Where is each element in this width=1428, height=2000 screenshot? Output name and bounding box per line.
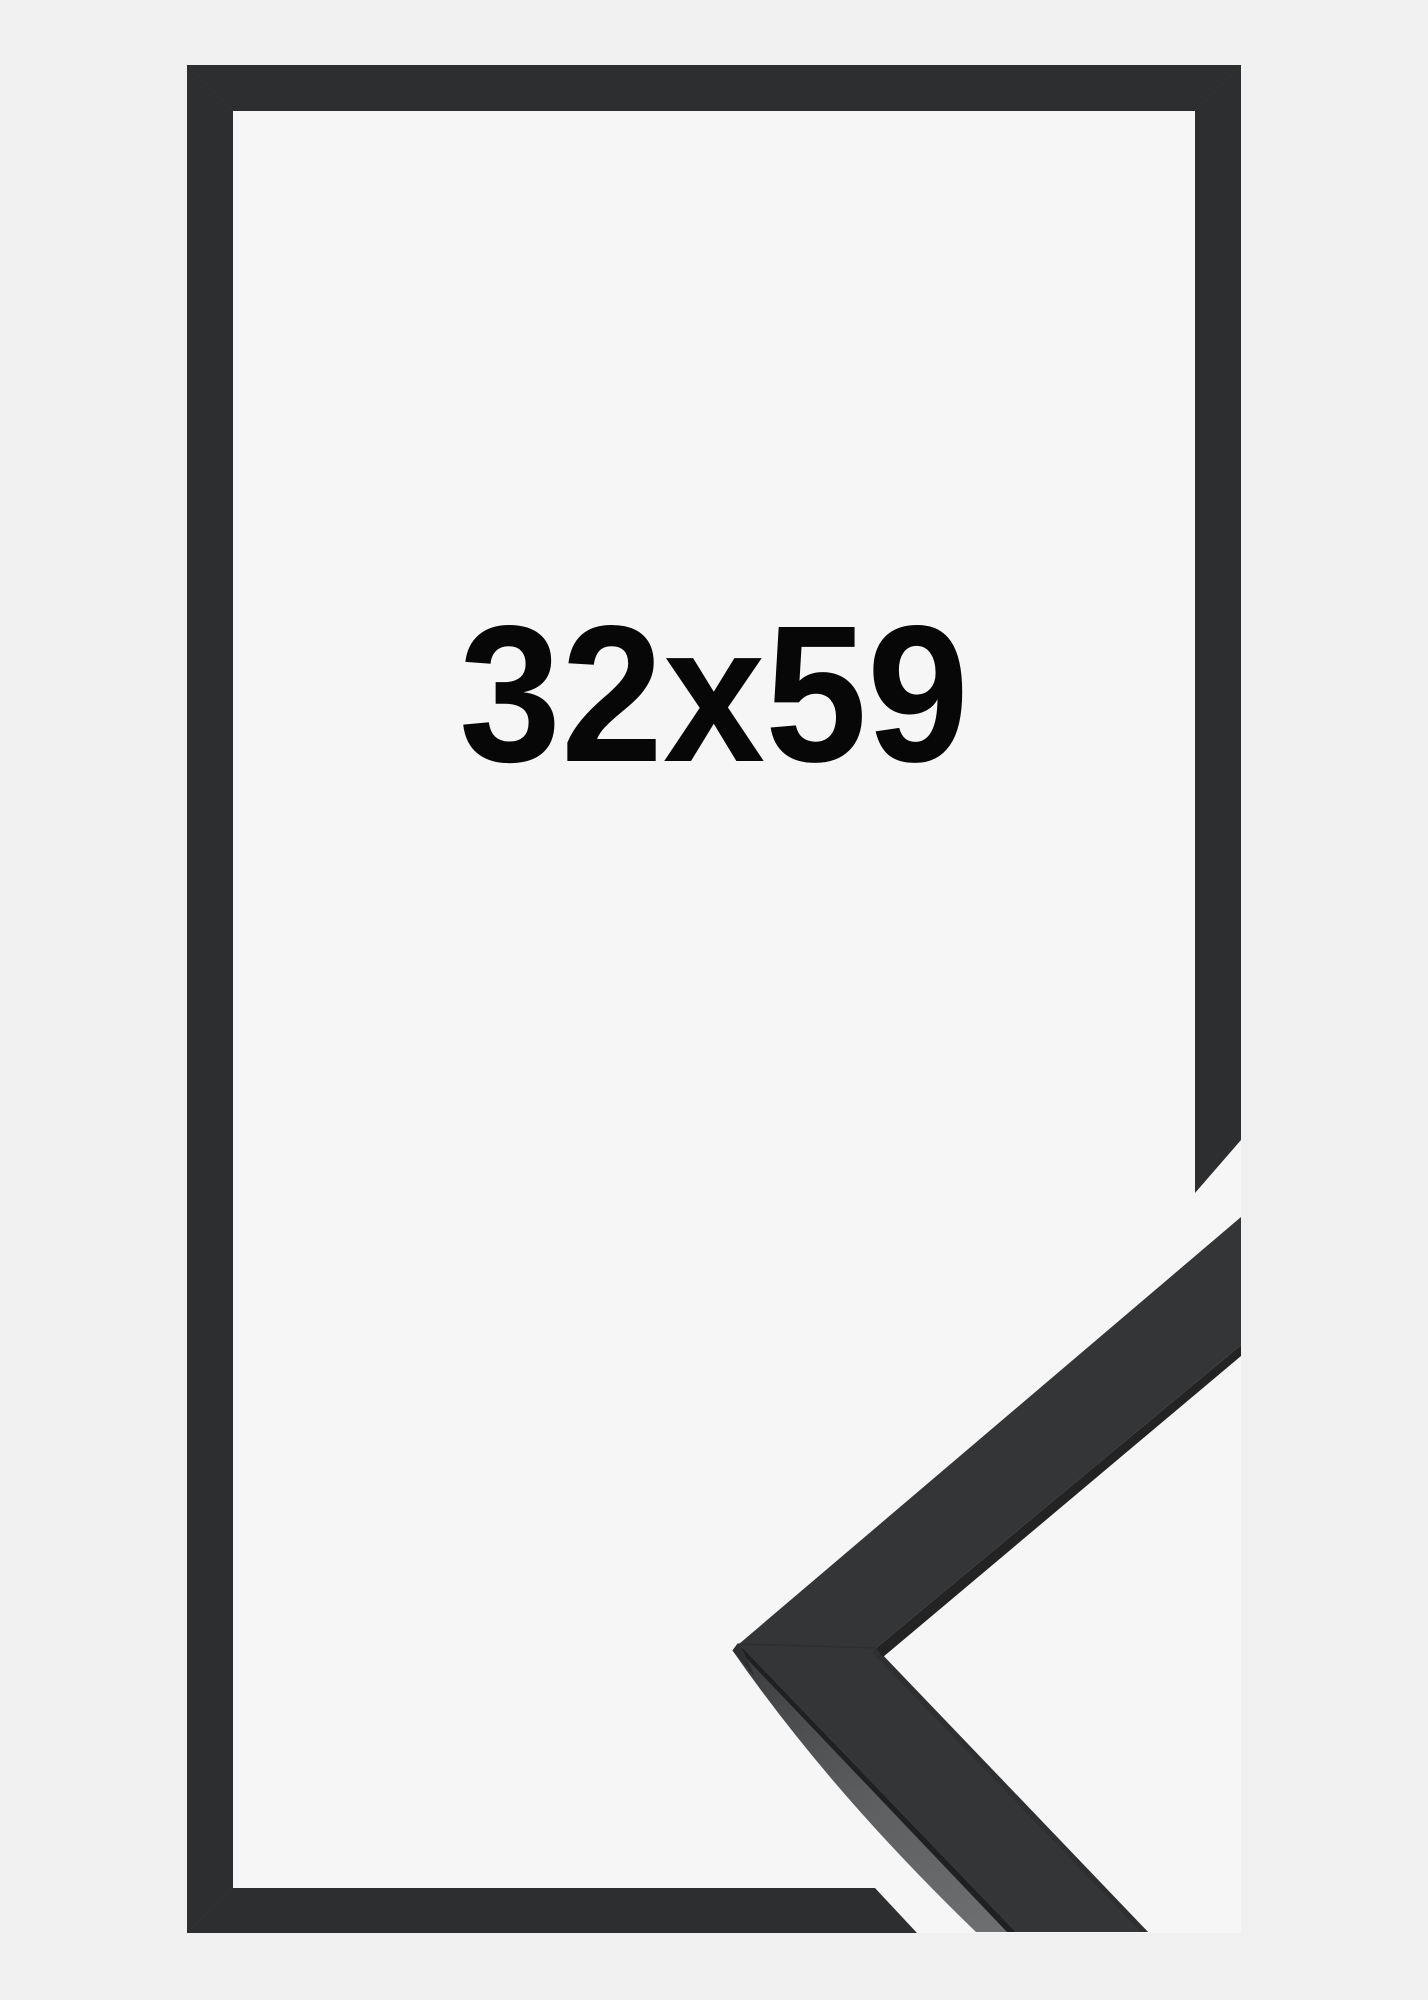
svg-text:32x59: 32x59 — [459, 585, 969, 803]
